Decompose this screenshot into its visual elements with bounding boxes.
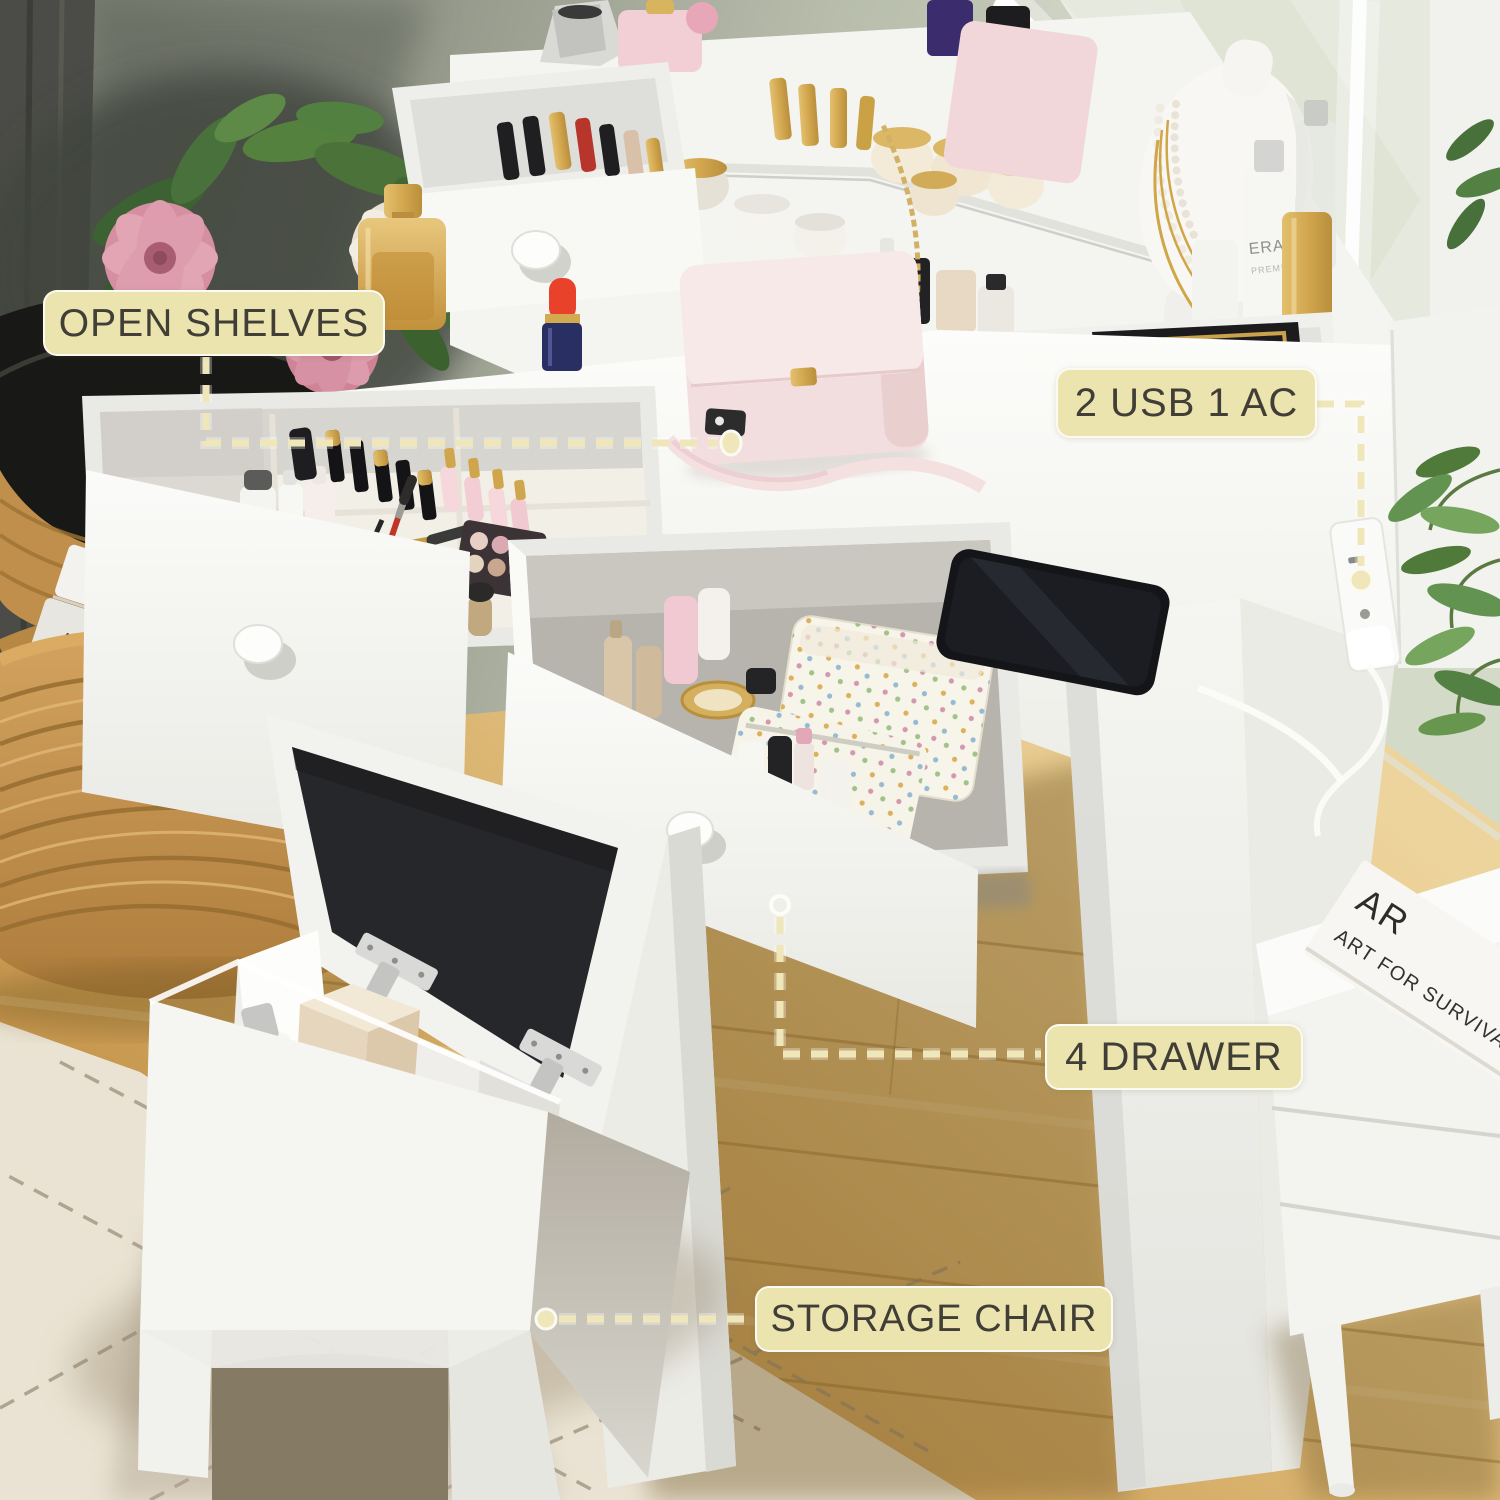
label-chair-text: STORAGE CHAIR bbox=[771, 1300, 1098, 1338]
pink-pouch-shelf bbox=[942, 19, 1099, 185]
connector-dot-chair bbox=[536, 1309, 556, 1329]
product-photo-vanity-set: ART FOR SURVIVAL bbox=[0, 0, 1500, 1500]
label-drawer-text: 4 DRAWER bbox=[1065, 1037, 1283, 1077]
label-usb-text: 2 USB 1 AC bbox=[1075, 383, 1298, 423]
nightstand: AR ART FOR SURVIVAL bbox=[1256, 859, 1500, 1500]
drawer-knob bbox=[234, 625, 282, 663]
plug bbox=[1345, 624, 1395, 671]
bag-clasp bbox=[790, 367, 817, 387]
scene-illustration: ART FOR SURVIVAL bbox=[0, 0, 1500, 1500]
drawer-knob bbox=[512, 231, 560, 269]
connector-dot-open-shelves bbox=[721, 431, 741, 455]
label-2-usb-1-ac: 2 USB 1 AC bbox=[1056, 368, 1317, 438]
label-4-drawer: 4 DRAWER bbox=[1045, 1024, 1303, 1090]
chair-arch-shadow bbox=[212, 1354, 448, 1500]
connector-dot-usb bbox=[1350, 569, 1372, 591]
label-storage-chair: STORAGE CHAIR bbox=[755, 1286, 1113, 1352]
label-open-shelves: OPEN SHELVES bbox=[43, 290, 385, 356]
label-open-shelves-text: OPEN SHELVES bbox=[59, 304, 369, 343]
